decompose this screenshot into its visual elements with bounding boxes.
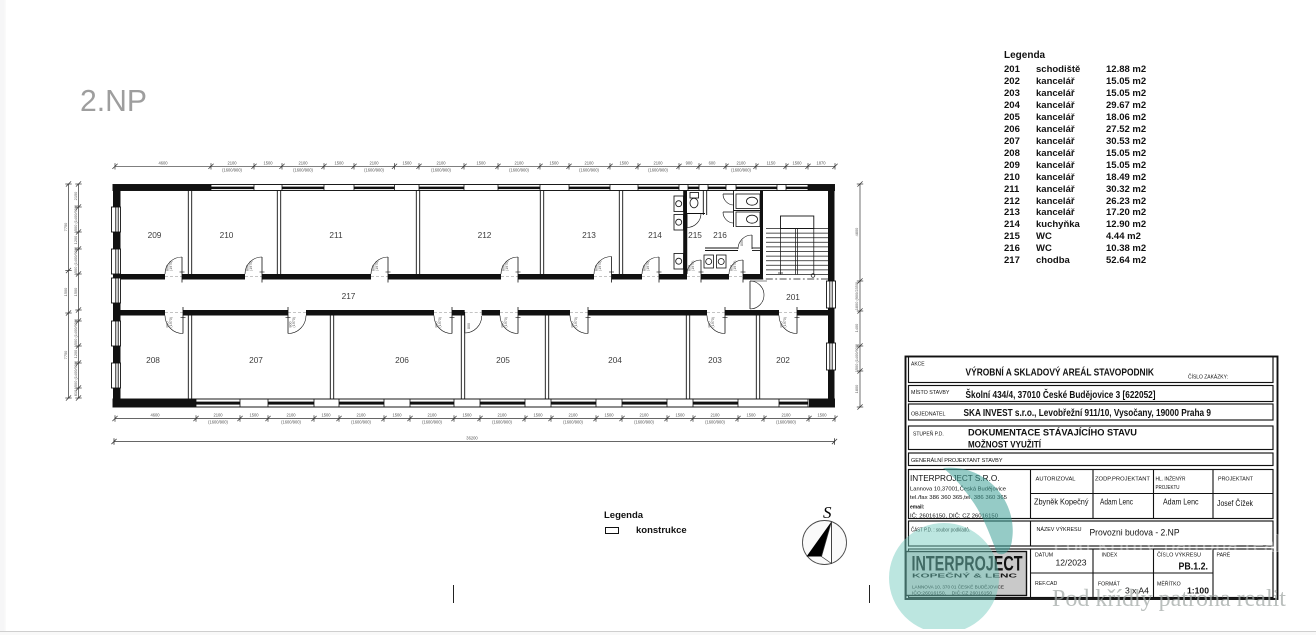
svg-text:S: S [823,503,832,522]
svg-text:PROJEKTANT: PROJEKTANT [1218,477,1254,483]
svg-text:DOKUMENTACE STÁVAJÍCÍHO STAVU: DOKUMENTACE STÁVAJÍCÍHO STAVU [968,428,1137,438]
svg-text:VÝROBNÍ A SKLADOVÝ AREÁL STAVO: VÝROBNÍ A SKLADOVÝ AREÁL STAVOPODNIK [966,367,1155,379]
svg-text:AKCE: AKCE [911,362,925,368]
svg-text:Adam Lenc: Adam Lenc [1100,497,1134,507]
svg-text:PB.1.2.: PB.1.2. [1179,562,1209,573]
svg-text:STUPEŇ P.D.: STUPEŇ P.D. [913,431,944,438]
svg-text:Josef Čížek: Josef Čížek [1217,498,1254,508]
svg-text:SKA INVEST s.r.o., Levobřežní: SKA INVEST s.r.o., Levobřežní 911/10, Vy… [964,408,1212,419]
svg-text:Školní 434/4, 37010 České Budě: Školní 434/4, 37010 České Budějovice 3 [… [966,389,1156,401]
svg-text:OBJEDNATEL: OBJEDNATEL [911,412,946,418]
svg-text:ČÍSLO ZAKÁZKY:: ČÍSLO ZAKÁZKY: [1188,374,1228,381]
svg-text:PROJEKTU: PROJEKTU [1156,485,1180,491]
svg-text:Adam Lenc: Adam Lenc [1163,497,1199,507]
svg-text:MÍSTO STAVBY: MÍSTO STAVBY [911,389,950,396]
svg-text:HL. INŽENÝR: HL. INŽENÝR [1156,475,1186,483]
svg-text:ZODP.PROJEKTANT: ZODP.PROJEKTANT [1095,477,1151,483]
